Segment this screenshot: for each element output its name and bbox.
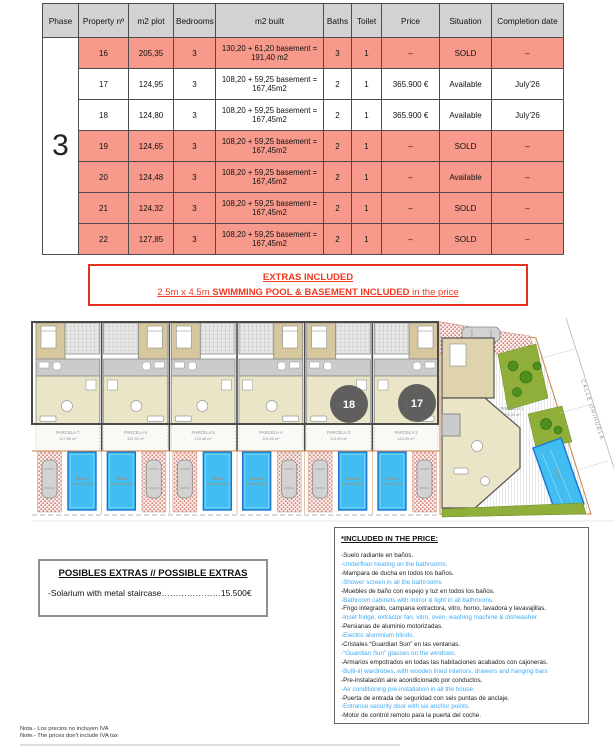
included-item: -“Guardian Sun” glasses on the windows. [341,650,585,659]
included-item: -Motor de control remoto para la puerta … [341,712,585,721]
column-header: Baths [324,4,352,38]
table-cell: 2 [324,131,352,162]
table-cell: 3 [174,69,216,100]
parcel-area: 124,95 m² [398,437,416,441]
table-row: 18124,803108,20 + 59,25 basement = 167,4… [43,100,564,131]
column-header: Completion date [492,4,564,38]
table-cell: – [382,38,440,69]
parcel-label: PARCELA 5 [192,430,216,435]
pool-label: PISCINA [250,477,264,481]
table-row: 22127,853108,20 + 59,25 basement = 167,4… [43,224,564,255]
parcel-label: PARCELA 2 [395,430,419,435]
extras-included-line: 2.5m x 4.5m SWIMMING POOL & BASEMENT INC… [157,287,458,298]
pool-sublabel: S.Lámina: 15,00m² [381,482,404,486]
table-cell: 3 [174,100,216,131]
table-row: 17124,953108,20 + 59,25 basement = 167,4… [43,69,564,100]
column-header: Phase [43,4,79,38]
included-item: -Air conditioning pre-installation in al… [341,686,585,695]
table-cell: July'26 [492,100,564,131]
table-cell: 3 [324,38,352,69]
table-cell: – [382,131,440,162]
extras-line-prefix: 2.5m x 4.5m [157,287,212,298]
table-cell: Available [440,100,492,131]
table-cell: 205,35 [129,38,174,69]
column-header: m2 built [216,4,324,38]
table-cell: 3 [174,193,216,224]
included-item: -Built-in wardrobes, with wooden lined i… [341,668,585,677]
table-cell: 124,48 [129,162,174,193]
table-cell: 3 [174,162,216,193]
table-cell: 2 [324,69,352,100]
included-item: -Shower screen in all the bathrooms [341,579,585,588]
table-cell: 18 [79,100,129,131]
possible-extras-box: POSIBLES EXTRAS // POSSIBLE EXTRAS -Sola… [38,559,268,617]
table-cell: 3 [174,224,216,255]
parcel-area: 124,65 m² [262,437,280,441]
pool-sublabel: S.Lámina: 15,00m² [110,482,133,486]
table-cell: – [492,38,564,69]
unit-badge-18-label: 18 [343,399,355,411]
table-cell: 20 [79,162,129,193]
parcel-label: PARCELA 1 [500,406,524,411]
table-cell: 1 [352,100,382,131]
table-cell: – [382,162,440,193]
included-item: -Bathroom cabinets with mirror & light i… [341,597,585,606]
parcel-label: PARCELA 6 [124,430,148,435]
parcel-area: 205,35 m² [503,413,521,417]
pool-sublabel: S.Lámina: 15,00m² [206,482,229,486]
included-item: -Underfloor heating on the bathrooms. [341,561,585,570]
table-cell: 1 [352,162,382,193]
table-cell: 365.900 € [382,100,440,131]
table-cell: 108,20 + 59,25 basement = 167,45m2 [216,100,324,131]
table-cell: 2 [324,100,352,131]
table-cell: 2 [324,224,352,255]
parcel-label: PARCELA 7 [56,430,80,435]
property-table-body: 316205,353130,20 + 61,20 basement = 191,… [43,38,564,255]
column-header: Toilet [352,4,382,38]
included-item: -Armarios empotrados en todas las habita… [341,659,585,668]
parcel-label: PARCELA 3 [327,430,351,435]
pool-sublabel: S.Lámina: 15,00m² [71,482,94,486]
extras-line-suffix: in the price [410,287,459,298]
included-item: -Entrance security door with six anchor … [341,703,585,712]
table-row: 20124,483108,20 + 59,25 basement = 167,4… [43,162,564,193]
footer-notes: Nota.- Los precios no incluyen IVANote.-… [20,726,118,740]
included-item: -Muebles de baño con espejo y luz en tod… [341,588,585,597]
table-cell: 127,85 [129,224,174,255]
table-cell: 2 [324,193,352,224]
table-cell: 1 [352,38,382,69]
property-table: PhaseProperty nºm2 plotBedroomsm2 builtB… [42,3,564,255]
column-header: Price [382,4,440,38]
column-header: Bedrooms [174,4,216,38]
extras-included-box: EXTRAS INCLUDED 2.5m x 4.5m SWIMMING POO… [88,264,528,306]
included-item: -Pre-instalación aire acondicionado por … [341,677,585,686]
table-cell: 17 [79,69,129,100]
table-cell: 1 [352,224,382,255]
table-cell: 21 [79,193,129,224]
table-cell: SOLD [440,131,492,162]
table-cell: 3 [174,38,216,69]
pool-sublabel: S.Lámina: 15,00m² [341,482,364,486]
table-cell: 22 [79,224,129,255]
pool-label: PISCINA [115,477,129,481]
pool-sublabel: S.Lámina: 15,00m² [245,482,268,486]
table-header-row: PhaseProperty nºm2 plotBedroomsm2 builtB… [43,4,564,38]
site-plan: CALLE ORIHUELA PARCELA 7 127,85 m² PARCE… [30,318,614,528]
table-cell: 108,20 + 59,25 basement = 167,45m2 [216,193,324,224]
table-cell: 16 [79,38,129,69]
column-header: Situation [440,4,492,38]
table-cell: – [382,224,440,255]
included-item: -Puerta de entrada de seguridad con seis… [341,695,585,704]
table-cell: SOLD [440,224,492,255]
footer-note-line: Note.- The prices don't include IVA tax [20,733,118,740]
parcel-area: 124,48 m² [195,437,213,441]
pool-label: PISCINA [211,477,225,481]
table-cell: 124,95 [129,69,174,100]
included-in-price-box: *INCLUDED IN THE PRICE: -Suelo radiante … [334,527,589,724]
table-cell: 130,20 + 61,20 basement = 191,40 m2 [216,38,324,69]
pool-label: PISCINA [386,477,400,481]
table-cell: 108,20 + 59,25 basement = 167,45m2 [216,162,324,193]
footer-note-line: Nota.- Los precios no incluyen IVA [20,726,118,733]
table-cell: 124,65 [129,131,174,162]
table-cell: 124,32 [129,193,174,224]
street-label: CALLE ORIHUELA [579,379,604,442]
table-cell: 108,20 + 59,25 basement = 167,45m2 [216,131,324,162]
parcel-area: 127,85 m² [59,437,77,441]
included-item: -Mampara de ducha en todos los baños. [341,570,585,579]
table-cell: 1 [352,131,382,162]
table-row: 316205,353130,20 + 61,20 basement = 191,… [43,38,564,69]
pool-label: PISCINA [346,477,360,481]
table-cell: – [382,193,440,224]
possible-extras-title: POSIBLES EXTRAS // POSSIBLE EXTRAS [48,568,258,579]
table-cell: Available [440,69,492,100]
table-cell: 2 [324,162,352,193]
possible-extras-item: -Solarium with metal staircase…………………15.… [48,588,258,598]
table-cell: 108,20 + 59,25 basement = 167,45m2 [216,69,324,100]
table-cell: – [492,162,564,193]
cutoff-text-strip [20,744,400,746]
extras-included-title: EXTRAS INCLUDED [263,272,353,283]
table-cell: 19 [79,131,129,162]
phase-value: 3 [43,38,79,255]
table-cell: 365.900 € [382,69,440,100]
table-cell: SOLD [440,38,492,69]
included-item: -Persianas de aluminio motorizadas. [341,623,585,632]
table-cell: Available [440,162,492,193]
column-header: m2 plot [129,4,174,38]
parcel-area: 124,80 m² [330,437,348,441]
included-item: -Inset fridge, extractor fan, vitro, ove… [341,614,585,623]
table-cell: 1 [352,69,382,100]
possible-extras-list: -Solarium with metal staircase…………………15.… [48,588,258,598]
table-cell: 3 [174,131,216,162]
included-item: -Cristales “Guardian Sun” en las ventana… [341,641,585,650]
included-item: -Frigo integrado, campana extractora, vi… [341,605,585,614]
unit-badge-17-label: 17 [411,398,423,410]
table-cell: – [492,224,564,255]
included-in-price-title: *INCLUDED IN THE PRICE: [341,534,585,543]
table-cell: – [492,193,564,224]
extras-line-bold: SWIMMING POOL & BASEMENT INCLUDED [212,287,409,298]
table-row: 21124,323108,20 + 59,25 basement = 167,4… [43,193,564,224]
table-cell: – [492,131,564,162]
site-plan-drawing: CALLE ORIHUELA PARCELA 7 127,85 m² PARCE… [30,318,614,528]
included-list: -Suelo radiante en baños.-Underfloor hea… [341,552,585,721]
table-cell: 124,80 [129,100,174,131]
table-cell: July'26 [492,69,564,100]
table-row: 19124,653108,20 + 59,25 basement = 167,4… [43,131,564,162]
included-item: -Suelo radiante en baños. [341,552,585,561]
table-cell: SOLD [440,193,492,224]
parcel-area: 124,32 m² [127,437,145,441]
table-cell: 108,20 + 59,25 basement = 167,45m2 [216,224,324,255]
parcel-label: PARCELA 4 [259,430,283,435]
pool-label: PISCINA [76,477,90,481]
column-header: Property nº [79,4,129,38]
included-item: -Electric aluminium blinds. [341,632,585,641]
table-cell: 1 [352,193,382,224]
